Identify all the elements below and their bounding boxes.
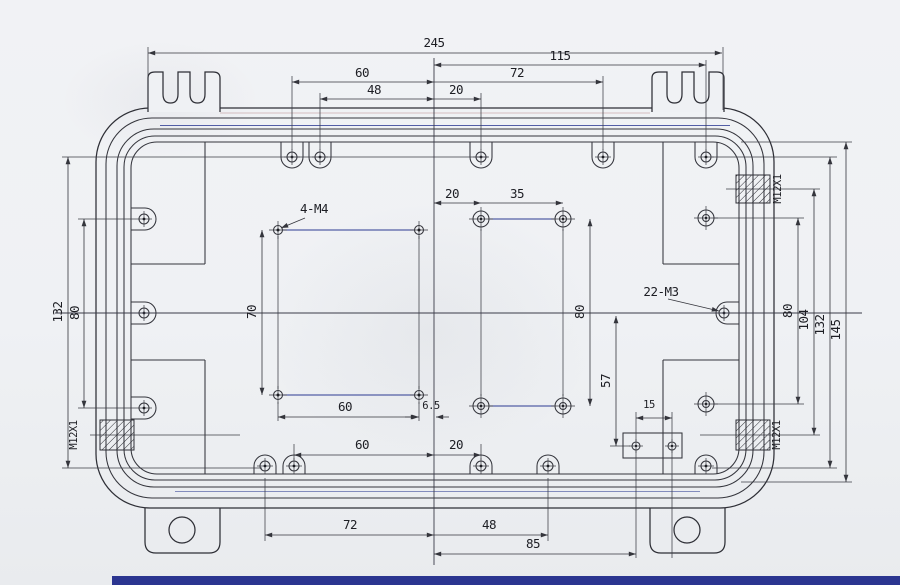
dim-m4-70: 70 (244, 305, 259, 319)
corner-bosses (131, 142, 739, 474)
dim-top-48: 48 (367, 82, 381, 97)
screw-lug (254, 455, 276, 474)
cable-gland-bottom-right (700, 420, 820, 450)
dim-top-60: 60 (355, 65, 369, 80)
dim-center-20: 20 (445, 186, 459, 201)
dim-top-72: 72 (510, 65, 524, 80)
technical-drawing-page: 245 115 60 72 48 20 20 35 80 70 60 6.5 4… (0, 0, 900, 585)
scan-edge-bar (112, 576, 900, 585)
dimension-lines (68, 53, 846, 554)
dim-bottom-85: 85 (526, 536, 540, 551)
dim-m4-offset: 6.5 (422, 400, 440, 412)
dim-bottom-72: 72 (343, 517, 357, 532)
hole-pattern-m4 (269, 221, 428, 404)
leader-4-m4 (281, 218, 305, 228)
dim-bottom-60: 60 (355, 437, 369, 452)
hole-pattern-center (469, 207, 575, 418)
dim-right-145: 145 (828, 319, 843, 340)
dim-m4-60: 60 (338, 399, 352, 414)
dim-bottom-48: 48 (482, 517, 496, 532)
dim-115: 115 (549, 48, 570, 63)
dim-center-80: 80 (572, 305, 587, 319)
corner-boss-bottom-left (131, 360, 205, 474)
terminal-bracket (623, 433, 682, 558)
mounting-foot-right (650, 508, 725, 553)
corner-boss-top-left (131, 142, 205, 264)
leader-22-m3 (668, 299, 719, 311)
gland-label-top-right: M12X1 (772, 174, 784, 203)
dim-left-80: 80 (67, 306, 82, 320)
dim-center-35: 35 (510, 186, 524, 201)
centerlines (55, 58, 862, 565)
enclosure-drawing: 245 115 60 72 48 20 20 35 80 70 60 6.5 4… (0, 0, 900, 585)
screw-lugs (131, 142, 739, 474)
top-flange-tab-left (148, 72, 220, 112)
screw-lug (695, 455, 717, 474)
screw-lug (537, 455, 559, 474)
label-22-m3: 22-M3 (643, 284, 678, 299)
corner-boss-bottom-right (663, 360, 739, 474)
dim-right-132: 132 (812, 314, 827, 335)
cable-glands (90, 175, 820, 450)
top-flange-tab-right (652, 72, 724, 112)
foot-hole-right (674, 517, 700, 543)
dim-right-104: 104 (796, 309, 811, 330)
dim-bottom-20: 20 (449, 437, 463, 452)
gland-label-bottom-right: M12X1 (771, 420, 783, 449)
label-4-m4: 4-M4 (300, 201, 328, 216)
dim-overall-245: 245 (423, 35, 444, 50)
dim-right-80: 80 (780, 304, 795, 318)
mounting-foot-left (145, 508, 220, 553)
foot-hole-left (169, 517, 195, 543)
dim-top-20: 20 (449, 82, 463, 97)
dim-15: 15 (643, 399, 655, 411)
cable-gland-bottom-left (90, 420, 240, 450)
corner-boss-top-right (663, 142, 739, 264)
gland-label-bottom-left: M12X1 (68, 420, 80, 449)
dim-57: 57 (598, 374, 613, 388)
dim-left-132: 132 (50, 301, 65, 322)
